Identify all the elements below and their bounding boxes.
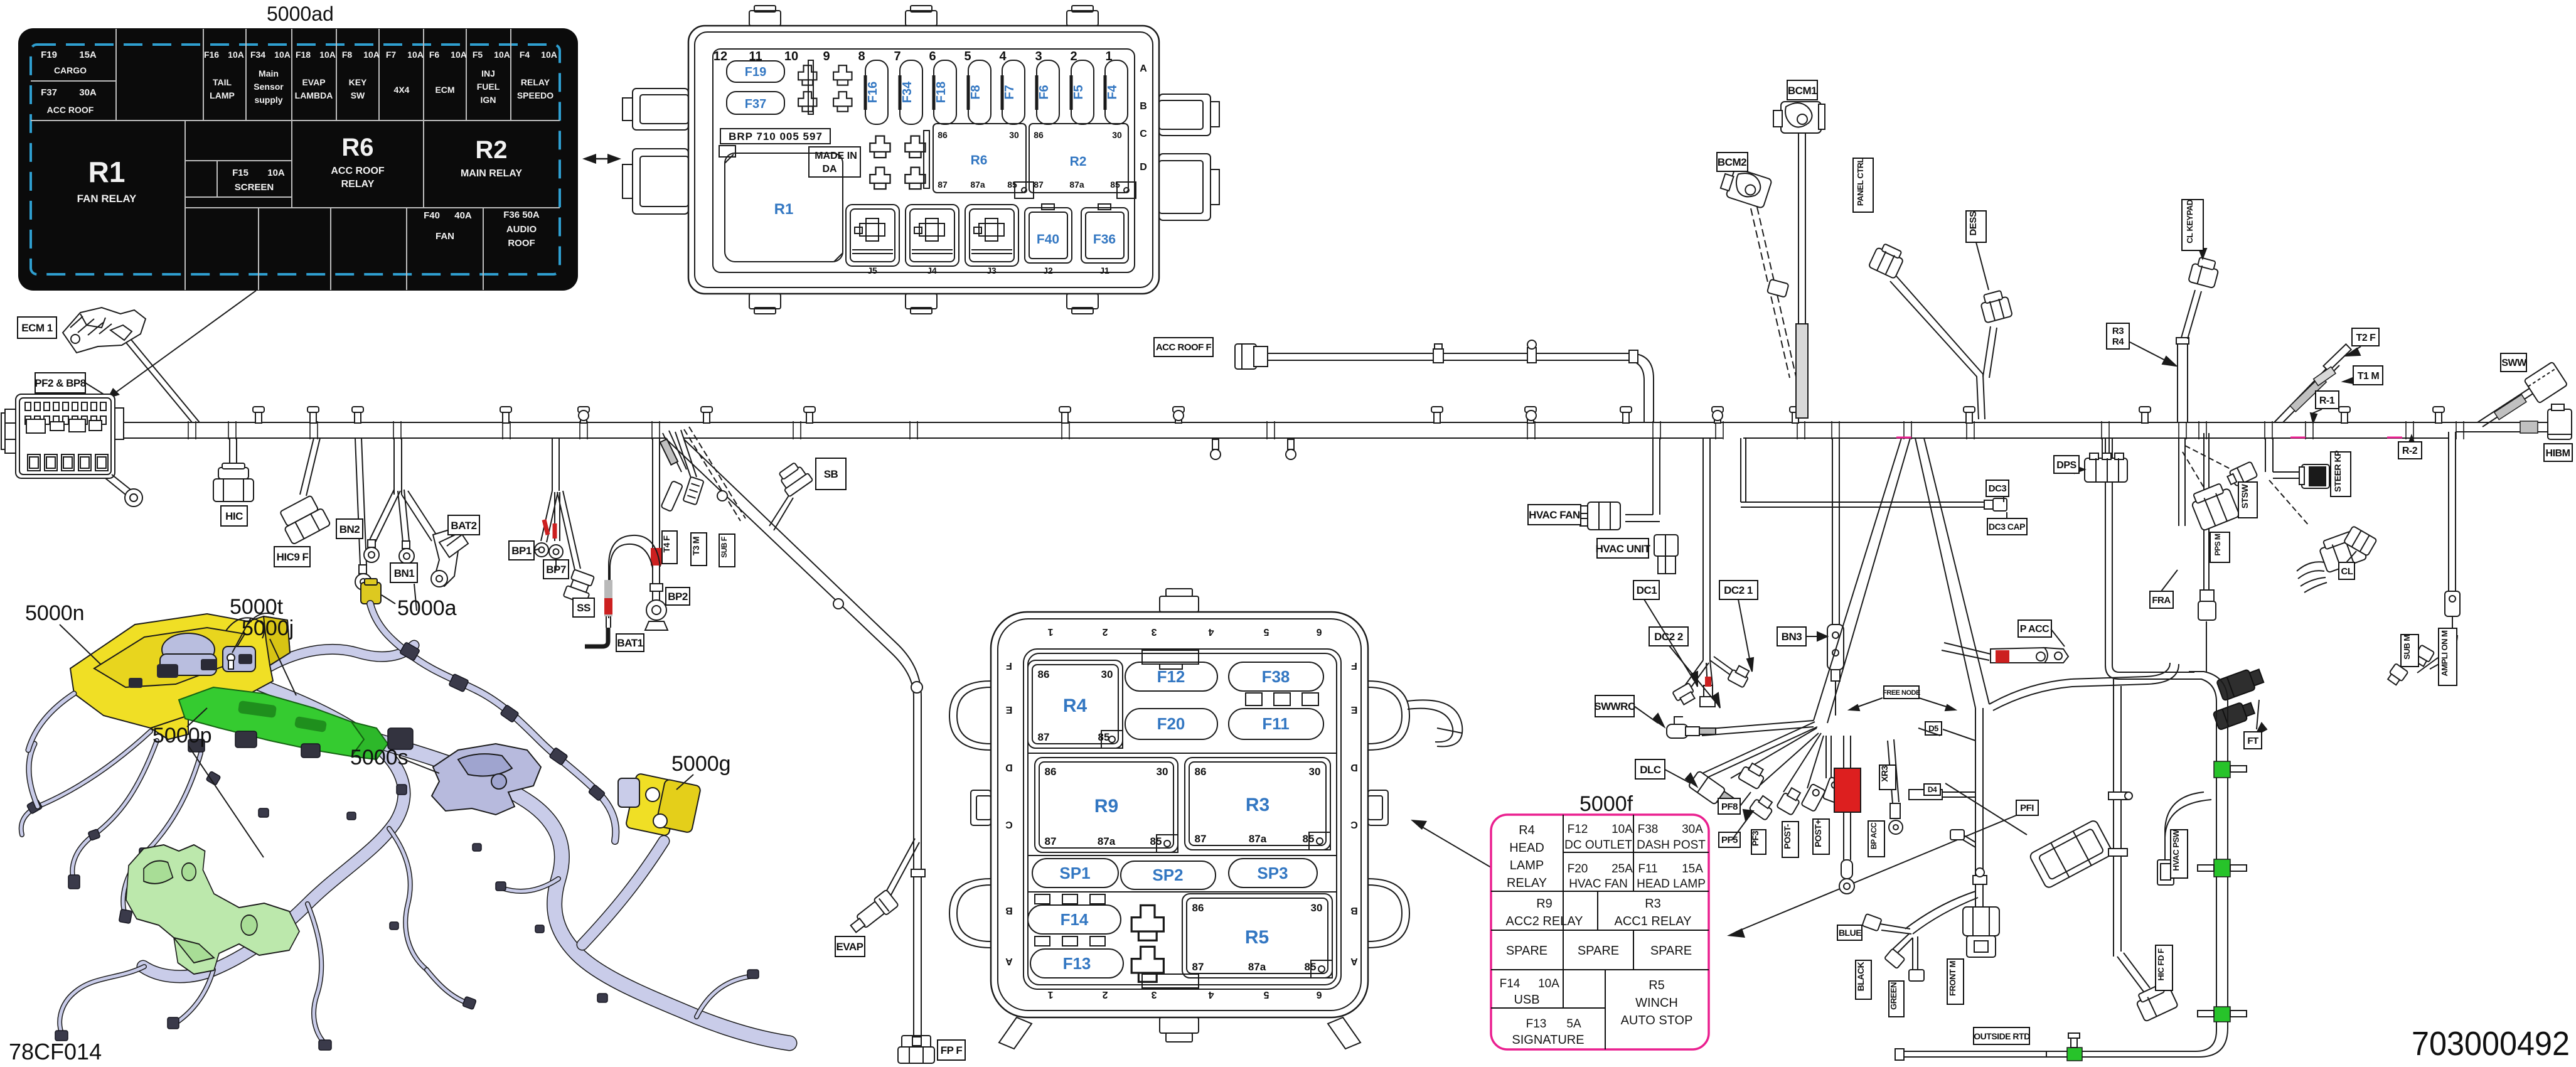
- svg-text:R6: R6: [341, 134, 373, 161]
- svg-text:F36 50A: F36 50A: [503, 210, 540, 220]
- svg-text:30A: 30A: [1682, 823, 1703, 836]
- svg-text:LAMP: LAMP: [210, 90, 235, 100]
- svg-text:DC3: DC3: [1989, 483, 2007, 494]
- svg-text:BN1: BN1: [394, 567, 415, 579]
- svg-text:AMPLI ON M: AMPLI ON M: [2440, 631, 2449, 677]
- svg-text:F15: F15: [232, 168, 249, 178]
- svg-text:R4: R4: [1063, 695, 1088, 716]
- svg-text:703000492: 703000492: [2412, 1025, 2570, 1063]
- svg-text:D: D: [1005, 762, 1013, 773]
- svg-text:FAN: FAN: [436, 231, 454, 242]
- svg-text:B: B: [1005, 905, 1013, 916]
- svg-text:86: 86: [1038, 668, 1050, 680]
- svg-text:SUB M: SUB M: [2402, 635, 2412, 659]
- svg-text:POST+: POST+: [1813, 820, 1823, 847]
- svg-text:SUB F: SUB F: [720, 537, 729, 558]
- svg-text:BAT2: BAT2: [451, 520, 476, 532]
- svg-text:PF2 & BP8: PF2 & BP8: [35, 377, 86, 389]
- svg-text:10A: 10A: [274, 50, 291, 60]
- svg-text:E: E: [1005, 704, 1012, 715]
- svg-text:HIBM: HIBM: [2546, 448, 2570, 459]
- svg-text:STEER KP: STEER KP: [2333, 451, 2343, 492]
- svg-text:FAN RELAY: FAN RELAY: [77, 193, 137, 205]
- svg-text:30: 30: [1311, 902, 1323, 914]
- svg-text:25A: 25A: [1611, 862, 1633, 876]
- svg-text:HEAD LAMP: HEAD LAMP: [1637, 877, 1706, 891]
- svg-text:C: C: [1140, 129, 1147, 139]
- svg-text:87a: 87a: [1069, 180, 1084, 190]
- svg-text:3: 3: [1151, 989, 1157, 1000]
- svg-text:2: 2: [1102, 989, 1108, 1000]
- svg-text:SS: SS: [577, 602, 591, 614]
- svg-text:AUTO STOP: AUTO STOP: [1621, 1014, 1693, 1027]
- svg-text:B: B: [1140, 101, 1147, 112]
- svg-text:87a: 87a: [1248, 961, 1266, 973]
- svg-text:F40: F40: [424, 210, 440, 221]
- svg-text:ACC ROOF: ACC ROOF: [47, 105, 94, 115]
- svg-text:Sensor: Sensor: [254, 82, 284, 92]
- svg-text:30: 30: [1309, 766, 1321, 778]
- svg-text:WINCH: WINCH: [1635, 996, 1678, 1010]
- svg-text:BAT1: BAT1: [617, 637, 643, 649]
- svg-text:DASH POST: DASH POST: [1637, 839, 1706, 852]
- svg-text:BCM1: BCM1: [1788, 85, 1817, 97]
- svg-text:10A: 10A: [363, 50, 380, 60]
- svg-text:10A: 10A: [267, 168, 285, 178]
- svg-text:SPARE: SPARE: [1578, 944, 1619, 958]
- svg-text:5000n: 5000n: [25, 601, 85, 625]
- svg-text:4: 4: [1208, 989, 1214, 1000]
- svg-text:F38: F38: [1262, 667, 1290, 686]
- svg-text:HVAC FAN: HVAC FAN: [1529, 509, 1580, 521]
- svg-text:PF8: PF8: [1721, 802, 1738, 812]
- svg-text:F12: F12: [1568, 823, 1588, 836]
- svg-text:9: 9: [823, 50, 830, 63]
- svg-text:R4: R4: [2112, 336, 2124, 347]
- svg-text:R3: R3: [1246, 795, 1269, 815]
- svg-text:USB: USB: [1514, 993, 1539, 1007]
- svg-text:D: D: [1350, 762, 1358, 773]
- svg-text:RELAY: RELAY: [341, 179, 375, 190]
- svg-text:87a: 87a: [1098, 835, 1116, 847]
- svg-text:R1: R1: [774, 201, 794, 218]
- svg-text:10: 10: [784, 50, 798, 63]
- svg-text:F18: F18: [296, 50, 311, 60]
- svg-text:78CF014: 78CF014: [9, 1039, 102, 1064]
- svg-text:R5: R5: [1245, 927, 1269, 948]
- svg-text:SP1: SP1: [1059, 864, 1090, 882]
- svg-text:30: 30: [1157, 766, 1168, 778]
- svg-text:10A: 10A: [494, 50, 510, 60]
- svg-text:ACC2 RELAY: ACC2 RELAY: [1505, 914, 1583, 928]
- svg-text:J3: J3: [986, 265, 997, 276]
- svg-text:87: 87: [1034, 180, 1044, 190]
- svg-text:BLACK: BLACK: [1856, 962, 1866, 991]
- svg-text:J2: J2: [1043, 265, 1053, 276]
- svg-text:86: 86: [938, 130, 948, 140]
- svg-text:ROOF: ROOF: [508, 238, 535, 249]
- svg-text:F6: F6: [1037, 85, 1051, 99]
- svg-text:12: 12: [713, 50, 727, 63]
- svg-text:DC2 2: DC2 2: [1654, 631, 1683, 643]
- svg-text:DLC: DLC: [1640, 764, 1661, 776]
- svg-text:SB: SB: [824, 468, 838, 480]
- svg-text:CARGO: CARGO: [54, 65, 87, 75]
- svg-text:R4: R4: [1519, 823, 1535, 837]
- svg-text:BP2: BP2: [668, 591, 688, 603]
- svg-text:BCM2: BCM2: [1718, 156, 1746, 168]
- svg-text:30: 30: [1009, 130, 1019, 140]
- svg-text:87: 87: [1045, 835, 1057, 847]
- svg-text:SWW: SWW: [2501, 358, 2527, 368]
- svg-text:SIGNATURE: SIGNATURE: [1512, 1033, 1584, 1047]
- svg-text:F: F: [1351, 660, 1357, 671]
- svg-text:5000a: 5000a: [397, 596, 457, 620]
- svg-text:BN3: BN3: [1782, 631, 1802, 643]
- svg-text:F13: F13: [1526, 1017, 1547, 1031]
- svg-text:F5: F5: [473, 50, 483, 60]
- svg-text:F18: F18: [934, 82, 948, 103]
- svg-text:FREE NODE: FREE NODE: [1883, 689, 1920, 697]
- svg-text:3: 3: [1151, 626, 1157, 637]
- svg-text:86: 86: [1192, 902, 1204, 914]
- svg-text:EVAP: EVAP: [836, 941, 863, 953]
- svg-text:5000s: 5000s: [350, 746, 409, 769]
- svg-text:6: 6: [929, 50, 936, 63]
- svg-text:30: 30: [1101, 668, 1113, 680]
- svg-text:F14: F14: [1061, 910, 1089, 929]
- svg-text:IGN: IGN: [481, 95, 496, 105]
- svg-text:85: 85: [1007, 180, 1017, 190]
- svg-text:CL KEYPAD: CL KEYPAD: [2185, 200, 2194, 244]
- svg-text:ECM 1: ECM 1: [21, 322, 53, 334]
- svg-text:5: 5: [1263, 626, 1269, 637]
- svg-text:D: D: [1140, 162, 1147, 173]
- svg-text:5000f: 5000f: [1579, 792, 1633, 816]
- svg-text:8: 8: [858, 50, 865, 63]
- svg-text:5: 5: [1263, 989, 1269, 1000]
- svg-text:ACC ROOF: ACC ROOF: [331, 166, 385, 176]
- svg-text:MADE IN: MADE IN: [815, 151, 857, 161]
- svg-text:HEAD: HEAD: [1509, 841, 1544, 855]
- svg-text:D4: D4: [1928, 785, 1937, 794]
- svg-text:AUDIO: AUDIO: [506, 224, 537, 235]
- svg-text:R3: R3: [2112, 326, 2124, 336]
- svg-text:R2: R2: [475, 136, 507, 164]
- svg-text:10A: 10A: [541, 50, 557, 60]
- svg-text:85: 85: [1098, 731, 1110, 743]
- svg-text:F36: F36: [1093, 232, 1116, 247]
- svg-text:40A: 40A: [454, 210, 472, 221]
- svg-text:TAIL: TAIL: [213, 77, 232, 87]
- svg-text:F4: F4: [1106, 84, 1120, 99]
- svg-text:10A: 10A: [319, 50, 336, 60]
- svg-text:F37: F37: [41, 87, 57, 98]
- svg-text:87a: 87a: [970, 180, 985, 190]
- svg-text:RELAY: RELAY: [521, 77, 550, 87]
- svg-text:XR3: XR3: [1879, 765, 1889, 781]
- svg-text:15A: 15A: [1682, 862, 1703, 876]
- svg-text:F20: F20: [1157, 714, 1185, 733]
- svg-text:87: 87: [1195, 833, 1207, 845]
- svg-text:5A: 5A: [1566, 1017, 1581, 1031]
- svg-text:BRP 710 005 597: BRP 710 005 597: [729, 131, 823, 142]
- svg-text:5000g: 5000g: [671, 752, 731, 776]
- svg-text:5: 5: [964, 50, 971, 63]
- svg-text:1: 1: [1047, 989, 1053, 1000]
- svg-text:HIC FD F: HIC FD F: [2156, 948, 2166, 980]
- svg-text:6: 6: [1316, 626, 1322, 637]
- svg-text:SP2: SP2: [1152, 866, 1183, 884]
- svg-text:A: A: [1350, 956, 1358, 967]
- svg-text:MAIN RELAY: MAIN RELAY: [461, 168, 522, 179]
- svg-text:BLUE: BLUE: [1839, 928, 1861, 938]
- svg-text:FP F: FP F: [941, 1044, 963, 1056]
- svg-text:DESS: DESS: [1968, 211, 1979, 235]
- svg-text:R6: R6: [971, 153, 988, 168]
- svg-text:J4: J4: [927, 265, 937, 276]
- svg-text:10A: 10A: [451, 50, 467, 60]
- svg-text:F14: F14: [1500, 977, 1520, 990]
- svg-text:BP1: BP1: [511, 545, 532, 557]
- svg-text:T1 M: T1 M: [2358, 371, 2380, 382]
- svg-text:P ACC: P ACC: [2020, 624, 2050, 635]
- svg-text:FRA: FRA: [2152, 595, 2171, 606]
- svg-text:4: 4: [999, 50, 1007, 63]
- svg-text:HIC: HIC: [225, 510, 243, 522]
- svg-text:FT: FT: [2247, 736, 2258, 746]
- svg-text:10A: 10A: [1538, 977, 1559, 990]
- svg-text:R2: R2: [1070, 154, 1087, 169]
- svg-text:15A: 15A: [79, 50, 97, 60]
- svg-text:C: C: [1005, 819, 1013, 830]
- svg-text:F8: F8: [969, 85, 983, 99]
- svg-text:F34: F34: [901, 81, 914, 103]
- svg-text:ECM: ECM: [435, 85, 454, 95]
- svg-text:F6: F6: [429, 50, 440, 60]
- svg-text:J1: J1: [1099, 265, 1109, 276]
- svg-text:LAMBDA: LAMBDA: [295, 90, 333, 100]
- svg-text:87: 87: [1038, 731, 1050, 743]
- svg-text:4: 4: [1208, 626, 1214, 637]
- svg-text:DC2 1: DC2 1: [1724, 584, 1753, 596]
- svg-text:HVAC FAN: HVAC FAN: [1569, 877, 1628, 891]
- svg-text:ACC ROOF F: ACC ROOF F: [1156, 342, 1212, 353]
- svg-text:87: 87: [1192, 961, 1204, 973]
- svg-text:F11: F11: [1638, 862, 1657, 876]
- svg-text:F16: F16: [866, 82, 880, 103]
- svg-text:R9: R9: [1536, 897, 1553, 911]
- svg-text:SCREEN: SCREEN: [235, 182, 274, 193]
- svg-text:1: 1: [1047, 626, 1053, 637]
- svg-text:F37: F37: [745, 97, 766, 111]
- svg-text:86: 86: [1034, 130, 1044, 140]
- svg-text:F4: F4: [520, 50, 530, 60]
- svg-text:DA: DA: [822, 164, 837, 174]
- svg-text:ACC1 RELAY: ACC1 RELAY: [1614, 914, 1691, 928]
- svg-text:F12: F12: [1157, 667, 1185, 686]
- svg-text:DC OUTLET: DC OUTLET: [1564, 839, 1632, 852]
- svg-text:F7: F7: [386, 50, 397, 60]
- svg-text:LAMP: LAMP: [1510, 859, 1544, 872]
- svg-text:87: 87: [938, 180, 948, 190]
- svg-text:R1: R1: [88, 156, 126, 188]
- svg-text:BP ACC: BP ACC: [1869, 822, 1878, 849]
- svg-text:T4 F: T4 F: [661, 535, 671, 553]
- svg-text:A: A: [1005, 956, 1013, 967]
- svg-text:SPARE: SPARE: [1650, 944, 1692, 958]
- svg-text:86: 86: [1045, 766, 1057, 778]
- svg-text:30A: 30A: [79, 87, 97, 98]
- svg-text:F13: F13: [1063, 954, 1091, 973]
- svg-text:R3: R3: [1645, 897, 1661, 911]
- svg-text:R9: R9: [1094, 796, 1118, 817]
- svg-text:F: F: [1006, 660, 1012, 671]
- svg-text:STSW: STSW: [2240, 483, 2250, 508]
- svg-text:5000ad: 5000ad: [267, 3, 334, 25]
- svg-text:CL: CL: [2341, 566, 2353, 577]
- svg-text:E: E: [1350, 704, 1357, 715]
- svg-text:SPEEDO: SPEEDO: [517, 90, 553, 100]
- svg-text:10A: 10A: [407, 50, 424, 60]
- svg-text:6: 6: [1316, 989, 1322, 1000]
- svg-text:BN2: BN2: [339, 523, 360, 535]
- svg-text:HIC9 F: HIC9 F: [277, 551, 309, 563]
- svg-text:R-2: R-2: [2402, 446, 2418, 456]
- svg-text:GREEN: GREEN: [1889, 982, 1898, 1010]
- svg-text:PFI: PFI: [2020, 803, 2034, 813]
- svg-text:J5: J5: [867, 265, 877, 276]
- svg-text:F5: F5: [1072, 85, 1086, 99]
- svg-text:F20: F20: [1568, 862, 1588, 876]
- svg-text:PPS M: PPS M: [2213, 533, 2222, 555]
- svg-text:PF3: PF3: [1750, 830, 1760, 846]
- svg-text:HVAC UNIT: HVAC UNIT: [1596, 543, 1651, 555]
- svg-text:SP3: SP3: [1257, 864, 1288, 882]
- svg-text:10A: 10A: [1611, 823, 1633, 836]
- svg-text:Main: Main: [259, 68, 279, 78]
- svg-text:supply: supply: [254, 95, 282, 105]
- svg-text:DPS: DPS: [2056, 460, 2076, 471]
- svg-text:86: 86: [1195, 766, 1207, 778]
- svg-text:RELAY: RELAY: [1507, 876, 1547, 890]
- svg-text:FRONT M: FRONT M: [1948, 961, 1957, 996]
- svg-text:POST-: POST-: [1782, 823, 1792, 849]
- svg-text:30: 30: [1112, 130, 1122, 140]
- svg-text:EVAP: EVAP: [302, 77, 325, 87]
- svg-text:F8: F8: [342, 50, 353, 60]
- svg-text:F19: F19: [745, 65, 766, 79]
- svg-text:B: B: [1350, 905, 1358, 916]
- svg-text:DC3 CAP: DC3 CAP: [1989, 522, 2025, 532]
- svg-text:F11: F11: [1262, 714, 1289, 733]
- svg-text:PANEL CTRL: PANEL CTRL: [1856, 158, 1865, 206]
- svg-text:A: A: [1140, 63, 1147, 74]
- svg-text:C: C: [1350, 819, 1358, 830]
- svg-text:R-1: R-1: [2319, 395, 2335, 406]
- svg-text:F34: F34: [250, 50, 265, 60]
- svg-text:OUTSIDE RTD: OUTSIDE RTD: [1974, 1031, 2030, 1041]
- svg-text:SPARE: SPARE: [1506, 944, 1547, 958]
- svg-text:DC1: DC1: [1637, 584, 1657, 596]
- svg-text:85: 85: [1110, 180, 1120, 190]
- svg-text:SW: SW: [351, 90, 365, 100]
- svg-text:10A: 10A: [228, 50, 244, 60]
- svg-text:HVAC PSW: HVAC PSW: [2171, 829, 2181, 871]
- svg-text:T3 M: T3 M: [691, 537, 701, 555]
- svg-text:KEY: KEY: [349, 77, 367, 87]
- svg-text:5000p: 5000p: [152, 724, 212, 748]
- svg-text:4X4: 4X4: [394, 85, 410, 95]
- svg-text:F19: F19: [41, 50, 57, 60]
- svg-text:F16: F16: [204, 50, 219, 60]
- svg-text:F38: F38: [1638, 823, 1659, 836]
- svg-text:F40: F40: [1037, 232, 1059, 247]
- svg-text:INJ: INJ: [481, 68, 495, 78]
- svg-text:87a: 87a: [1249, 833, 1267, 845]
- svg-text:T2 F: T2 F: [2356, 333, 2376, 343]
- svg-text:7: 7: [894, 50, 901, 63]
- svg-text:2: 2: [1102, 626, 1108, 637]
- svg-text:5000t: 5000t: [230, 595, 284, 619]
- svg-text:FUEL: FUEL: [477, 82, 500, 92]
- svg-text:F7: F7: [1003, 85, 1017, 99]
- svg-text:SWWRC: SWWRC: [1594, 700, 1635, 712]
- svg-text:R5: R5: [1649, 979, 1665, 992]
- svg-text:5000j: 5000j: [242, 616, 294, 640]
